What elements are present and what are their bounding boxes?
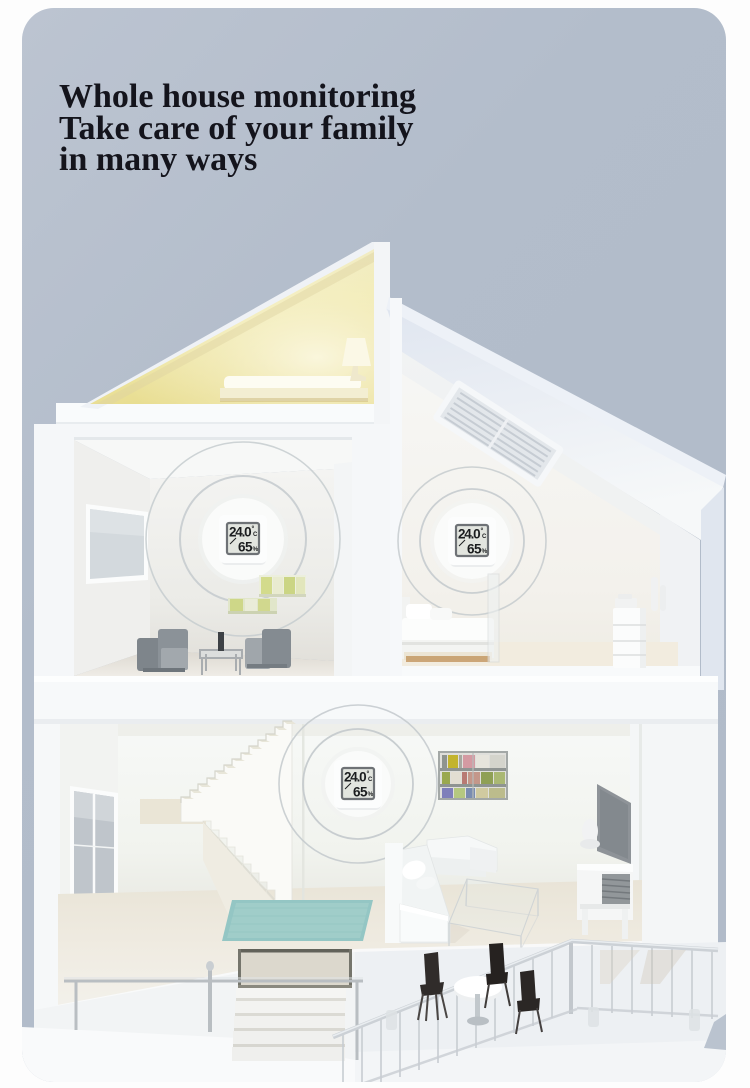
svg-text:in many ways: in many ways	[59, 141, 257, 178]
